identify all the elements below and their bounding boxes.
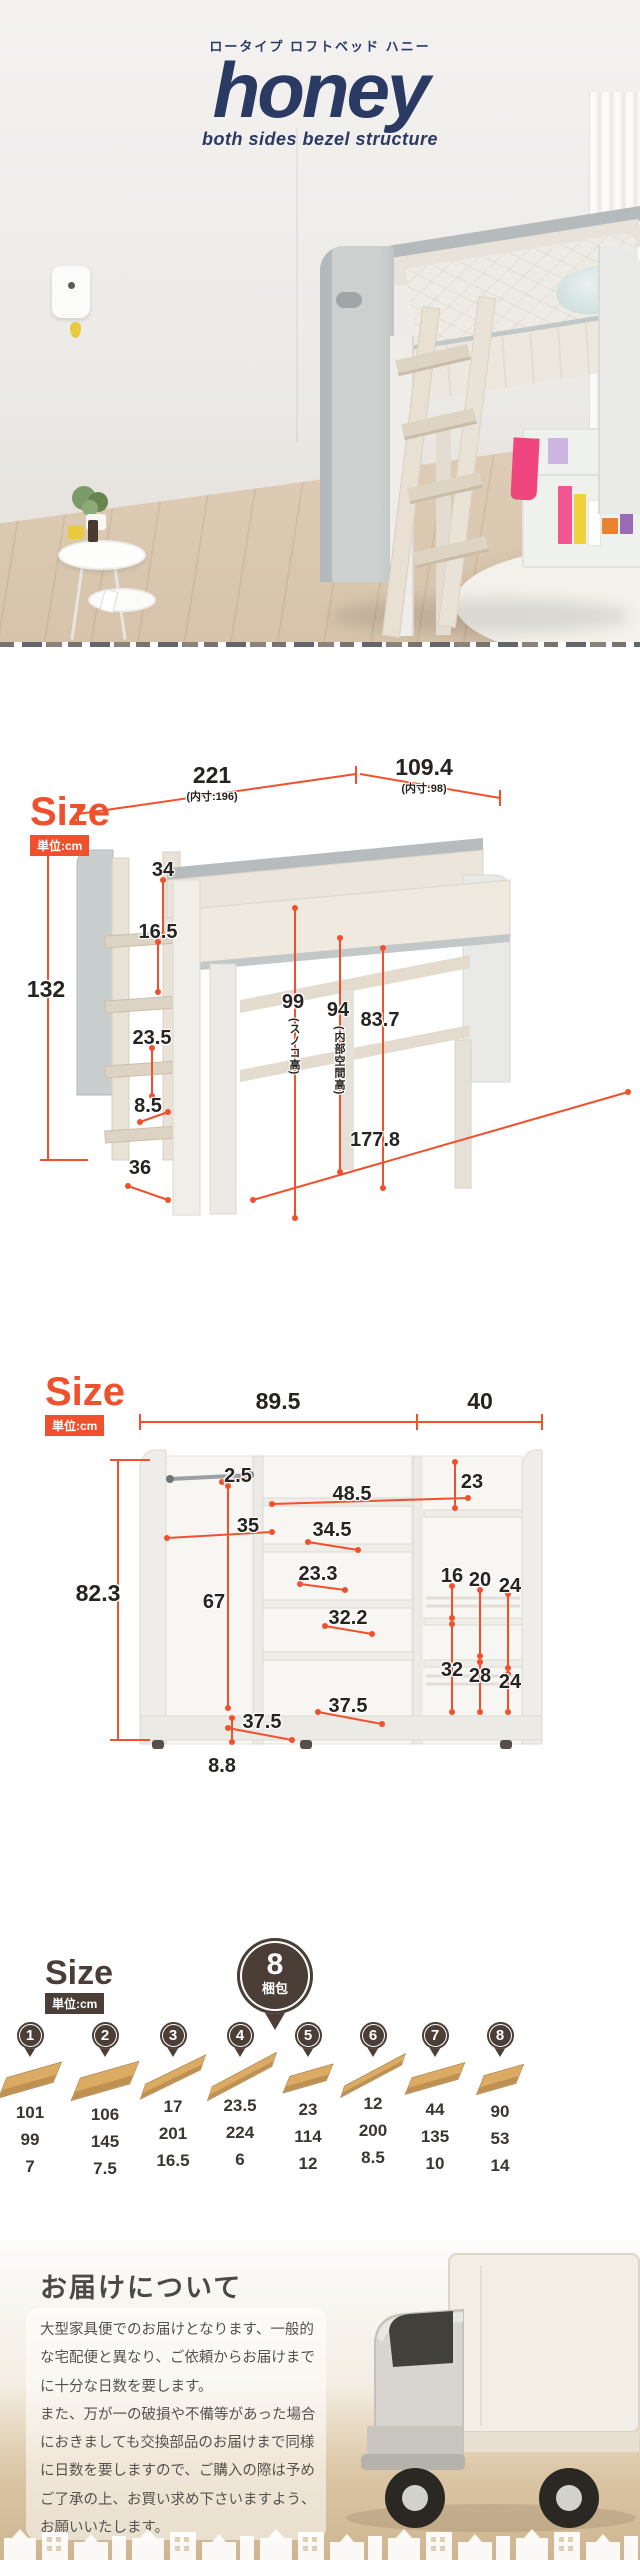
size-unit-badge: 単位:cm (45, 1993, 104, 2014)
dim-28: 28 (469, 1666, 491, 1686)
side-table-lower (88, 588, 156, 612)
dim-37-5-b: 37.5 (329, 1696, 368, 1716)
size-heading: Size (45, 1372, 125, 1412)
spacer (0, 1810, 640, 1930)
dim-99-note: (スノコ高) (286, 1018, 302, 1075)
package-dims: 23.5 224 6 (205, 2092, 275, 2173)
truck-illustration (326, 2246, 640, 2546)
dim-20: 20 (469, 1570, 491, 1590)
side-table (58, 540, 146, 570)
pkg-dim: 23 (273, 2096, 343, 2123)
dim-82-3: 82.3 (76, 1582, 121, 1605)
logo-block: ロータイプ ロフトベッド ハニー honey both sides bezel … (0, 36, 640, 150)
dim-36: 36 (129, 1158, 151, 1178)
dim-32: 32 (441, 1660, 463, 1680)
size-heading-block: Size 単位:cm (45, 1372, 125, 1436)
pkg-dim: 8.5 (338, 2144, 408, 2171)
dim-width-inner: (内寸:196) (186, 792, 237, 803)
size-bed-section: Size 単位:cm (0, 740, 640, 1310)
package-pin: 1 (17, 2022, 44, 2049)
size-heading: Size (30, 792, 110, 832)
dim-67: 67 (203, 1592, 225, 1612)
logo-title: honey (0, 55, 640, 127)
package-pin: 7 (422, 2022, 449, 2049)
size-unit-badge: 単位:cm (30, 835, 89, 856)
dim-94-note: (内部空間高) (331, 1026, 347, 1095)
pkg-dim: 201 (138, 2120, 208, 2147)
pkg-dim: 16.5 (138, 2147, 208, 2174)
dim-34: 34 (152, 860, 174, 880)
clock-pendulum (70, 322, 81, 338)
pkg-dim: 6 (205, 2146, 275, 2173)
dim-35: 35 (237, 1516, 259, 1536)
bottle (88, 520, 98, 542)
pkg-dim: 145 (70, 2128, 140, 2155)
package-illustration (405, 2062, 466, 2095)
box-lavender (548, 438, 568, 464)
package-column-6: 6 12 200 8.5 (338, 2022, 408, 2171)
delivery-heading: お届けについて (40, 2266, 242, 2305)
package-column-7: 7 44 135 10 (400, 2022, 470, 2177)
spacer (0, 1310, 640, 1360)
package-illustration (0, 2061, 62, 2098)
pkg-dim: 53 (465, 2125, 535, 2152)
room-corner (296, 128, 298, 443)
package-count-label: 梱包 (237, 1982, 313, 1995)
package-pin: 5 (295, 2022, 322, 2049)
dim-48-5: 48.5 (333, 1484, 372, 1504)
delivery-paragraph-1: 大型家具便でのお届けとなります、一般的な宅配便と異なり、ご依頼からお届けまでに十… (40, 2316, 316, 2401)
dim-depth-inner: (内寸:98) (401, 784, 446, 795)
dim-37-5-a: 37.5 (243, 1712, 282, 1732)
package-illustration (70, 2061, 139, 2102)
package-dims: 44 135 10 (400, 2096, 470, 2177)
package-pin: 3 (160, 2022, 187, 2049)
dim-8-8: 8.8 (208, 1756, 236, 1776)
dim-94: 94 (327, 1000, 349, 1020)
dim-23: 23 (461, 1472, 483, 1492)
package-column-1: 1 101 99 7 (0, 2022, 65, 2180)
dim-16: 16 (441, 1566, 463, 1586)
dim-2-5: 2.5 (224, 1466, 252, 1486)
dim-wagon-depth: 40 (467, 1390, 493, 1413)
book-yellow (574, 494, 586, 544)
pkg-dim: 12 (273, 2150, 343, 2177)
size-heading-block: Size 単位:cm (30, 792, 110, 856)
dim-depth: 109.4 (395, 756, 453, 779)
house-skyline (0, 2518, 640, 2560)
pkg-dim: 106 (70, 2101, 140, 2128)
size-heading: Size (45, 1956, 113, 1990)
package-dims: 17 201 16.5 (138, 2093, 208, 2174)
clock-dot (68, 282, 75, 289)
package-pin: 6 (360, 2022, 387, 2049)
dim-24-b: 24 (499, 1672, 521, 1692)
delivery-text: 大型家具便でのお届けとなります、一般的な宅配便と異なり、ご依頼からお届けまでに十… (40, 2316, 316, 2542)
package-dims: 90 53 14 (465, 2098, 535, 2179)
pkg-dim: 44 (400, 2096, 470, 2123)
package-dims: 106 145 7.5 (70, 2101, 140, 2182)
cuckoo-clock (52, 266, 90, 318)
package-column-5: 5 23 114 12 (273, 2022, 343, 2177)
yellow-box (68, 526, 84, 539)
dim-99: 99 (282, 992, 304, 1012)
dim-16-5: 16.5 (139, 922, 178, 942)
package-pin: 4 (227, 2022, 254, 2049)
package-count-pin: 8 梱包 (237, 1938, 313, 2014)
book-pink (558, 486, 572, 544)
toy-orange (602, 518, 618, 534)
pkg-dim: 99 (0, 2126, 65, 2153)
package-column-8: 8 90 53 14 (465, 2022, 535, 2179)
pkg-dim: 135 (400, 2123, 470, 2150)
dim-23-3: 23.3 (299, 1564, 338, 1584)
package-dims: 101 99 7 (0, 2099, 65, 2180)
dim-177-8: 177.8 (350, 1130, 400, 1150)
size-wagon-section: Size 単位:cm (0, 1360, 640, 1810)
pkg-dim: 17 (138, 2093, 208, 2120)
logo-tagline: both sides bezel structure (0, 129, 640, 150)
pkg-dim: 114 (273, 2123, 343, 2150)
hanging-cloth-pink (510, 437, 539, 500)
delivery-section: お届けについて 大型家具便でのお届けとなります、一般的な宅配便と異なり、ご依頼か… (0, 2240, 640, 2560)
package-pin: 8 (487, 2022, 514, 2049)
dim-23-5: 23.5 (133, 1028, 172, 1048)
dim-83-7: 83.7 (361, 1010, 400, 1030)
pkg-dim: 101 (0, 2099, 65, 2126)
package-illustration (476, 2064, 524, 2096)
bed-shadow (330, 598, 630, 634)
package-count: 8 (237, 1950, 313, 1980)
dim-width: 221 (193, 764, 231, 787)
packages-section: Size 単位:cm 8 梱包 1 101 99 7 2 106 145 7.5… (0, 1930, 640, 2240)
dim-24: 24 (499, 1576, 521, 1596)
package-column-2: 2 106 145 7.5 (70, 2022, 140, 2182)
size-unit-badge: 単位:cm (45, 1415, 104, 1436)
dim-8-5: 8.5 (134, 1096, 162, 1116)
dim-height-132: 132 (27, 978, 65, 1001)
pkg-dim: 7 (0, 2153, 65, 2180)
dim-wagon-width: 89.5 (256, 1390, 301, 1413)
bed-right-panel (598, 246, 640, 514)
package-illustration (282, 2063, 333, 2093)
panel-handle-cutout (336, 292, 362, 308)
package-column-4: 4 23.5 224 6 (205, 2022, 275, 2173)
spacer (0, 647, 640, 740)
pkg-dim: 7.5 (70, 2155, 140, 2182)
pkg-dim: 14 (465, 2152, 535, 2179)
package-dims: 12 200 8.5 (338, 2090, 408, 2171)
pkg-dim: 90 (465, 2098, 535, 2125)
package-dims: 23 114 12 (273, 2096, 343, 2177)
pkg-dim: 224 (205, 2119, 275, 2146)
hero-section: ロータイプ ロフトベッド ハニー honey both sides bezel … (0, 0, 640, 642)
size-heading-block: Size 単位:cm (45, 1956, 113, 2014)
pkg-dim: 12 (338, 2090, 408, 2117)
package-column-3: 3 17 201 16.5 (138, 2022, 208, 2174)
dim-32-2: 32.2 (329, 1608, 368, 1628)
pkg-dim: 10 (400, 2150, 470, 2177)
dim-34-5: 34.5 (313, 1520, 352, 1540)
package-pin: 2 (92, 2022, 119, 2049)
pkg-dim: 200 (338, 2117, 408, 2144)
